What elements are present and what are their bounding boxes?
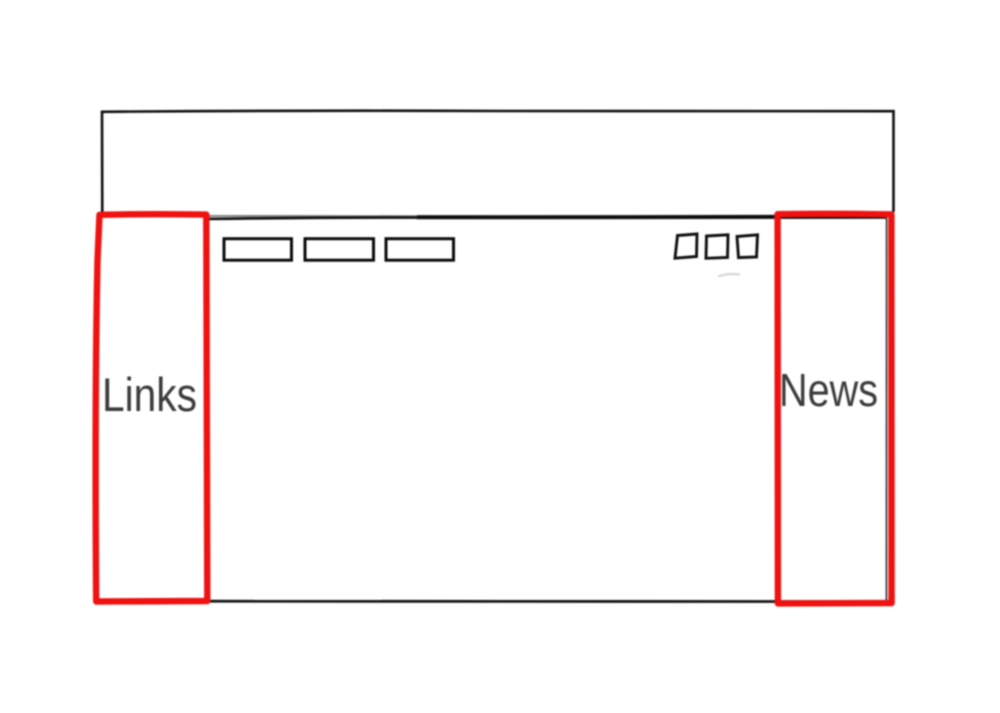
svg-text:News: News xyxy=(779,364,878,416)
svg-text:Links: Links xyxy=(102,368,197,421)
